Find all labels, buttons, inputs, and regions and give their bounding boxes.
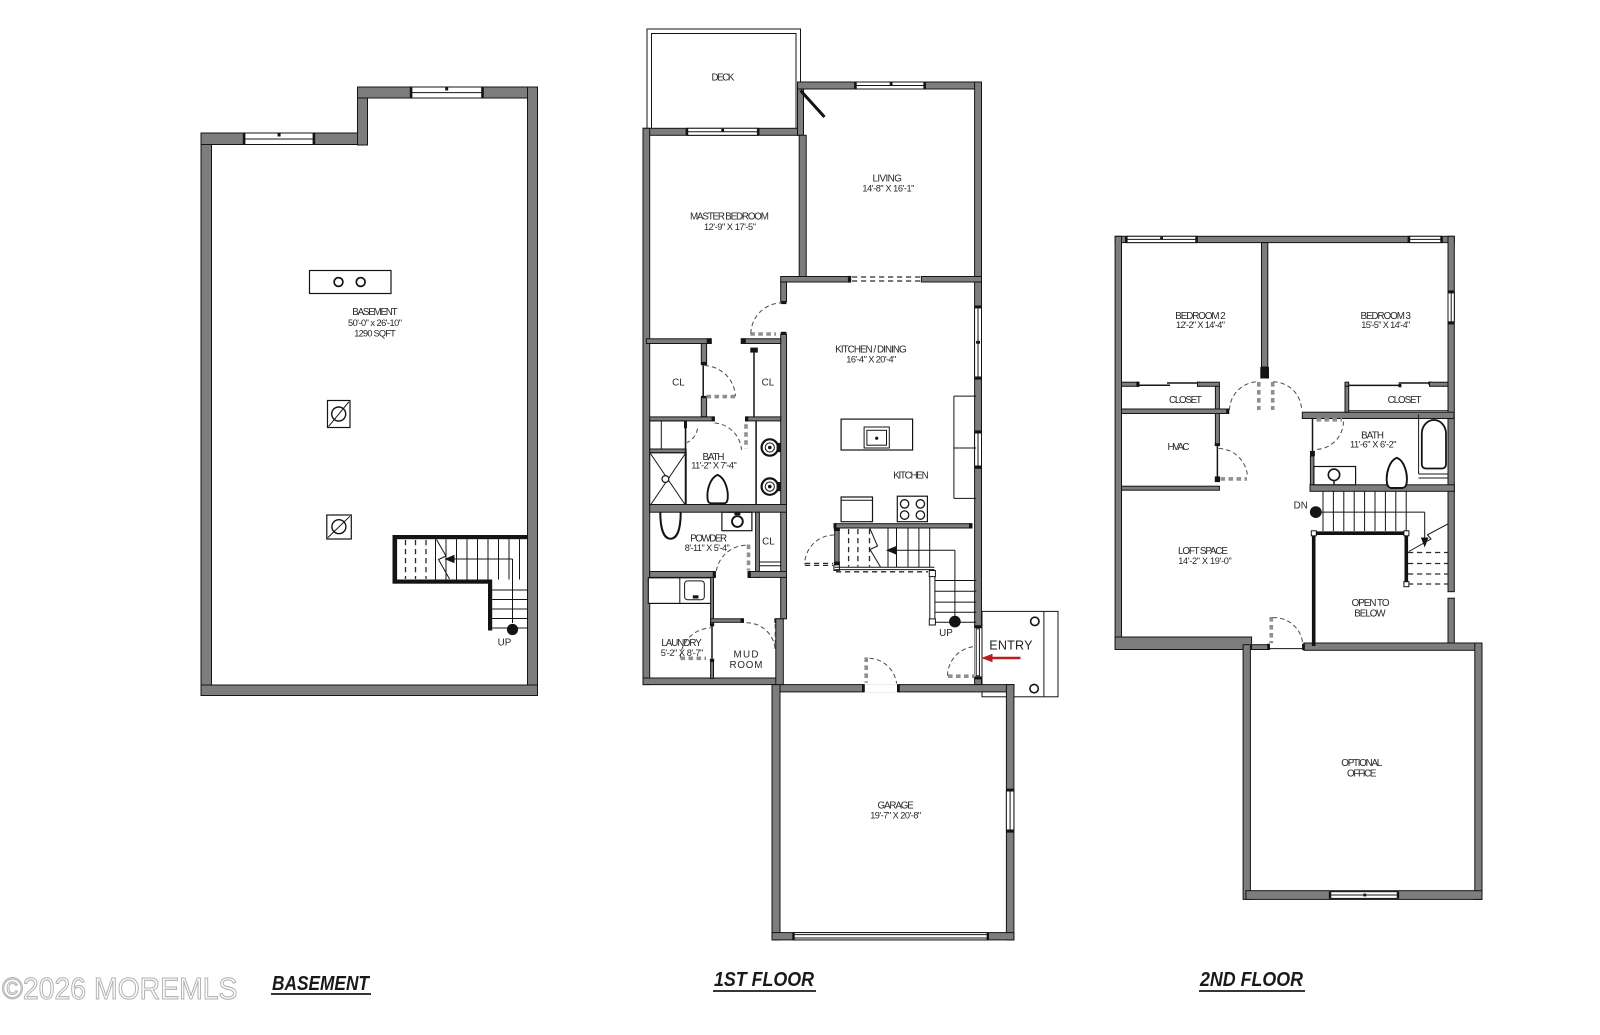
svg-text:16'-4" X 20'-4": 16'-4" X 20'-4" — [846, 354, 896, 364]
svg-text:©2026 MOREMLS: ©2026 MOREMLS — [2, 972, 237, 1006]
svg-text:OPTIONAL: OPTIONAL — [1341, 758, 1382, 769]
svg-text:50'-0" x 26'-10": 50'-0" x 26'-10" — [348, 318, 402, 328]
svg-text:12'-9" X 17'-5": 12'-9" X 17'-5" — [704, 222, 756, 232]
svg-text:BELOW: BELOW — [1354, 609, 1386, 620]
svg-text:15'-5" X 14'-4": 15'-5" X 14'-4" — [1361, 320, 1410, 330]
svg-text:MUD: MUD — [734, 650, 759, 661]
svg-text:MASTER BEDROOM: MASTER BEDROOM — [690, 212, 769, 223]
svg-text:19'-7" X 20'-8": 19'-7" X 20'-8" — [870, 811, 921, 821]
svg-text:CL: CL — [762, 536, 775, 547]
svg-text:5'-2" X 8'-7": 5'-2" X 8'-7" — [661, 648, 704, 658]
svg-text:ROOM: ROOM — [730, 660, 763, 671]
svg-text:HVAC: HVAC — [1168, 442, 1190, 453]
svg-text:12'-2" X 14'-4": 12'-2" X 14'-4" — [1176, 320, 1225, 330]
svg-text:11'-2" X 7'-4": 11'-2" X 7'-4" — [691, 461, 737, 471]
svg-text:OPEN TO: OPEN TO — [1352, 598, 1390, 609]
svg-text:UP: UP — [498, 638, 512, 649]
svg-text:KITCHEN: KITCHEN — [893, 471, 929, 482]
svg-text:8'-11" X 5'-4": 8'-11" X 5'-4" — [685, 543, 730, 553]
svg-text:BASEMENT: BASEMENT — [352, 307, 398, 318]
svg-text:1290 SQFT: 1290 SQFT — [354, 329, 396, 339]
svg-text:BASEMENT: BASEMENT — [272, 973, 371, 995]
svg-text:OFFICE: OFFICE — [1347, 768, 1377, 779]
svg-text:CLOSET: CLOSET — [1388, 395, 1422, 406]
svg-text:CL: CL — [762, 377, 775, 388]
svg-text:14'-8" X 16'-1": 14'-8" X 16'-1" — [862, 184, 914, 194]
svg-text:CL: CL — [672, 377, 685, 388]
svg-text:DN: DN — [1294, 501, 1308, 512]
svg-text:11'-6" X 6'-2": 11'-6" X 6'-2" — [1350, 440, 1397, 450]
svg-text:CLOSET: CLOSET — [1169, 395, 1202, 406]
svg-text:DECK: DECK — [712, 73, 735, 84]
svg-text:2ND FLOOR: 2ND FLOOR — [1199, 969, 1303, 991]
svg-text:UP: UP — [939, 628, 953, 639]
svg-text:ENTRY: ENTRY — [989, 639, 1033, 653]
svg-text:14'-2" X 19'-0": 14'-2" X 19'-0" — [1178, 556, 1232, 566]
svg-text:1ST FLOOR: 1ST FLOOR — [714, 969, 814, 991]
svg-text:LAUNDRY: LAUNDRY — [661, 638, 702, 649]
